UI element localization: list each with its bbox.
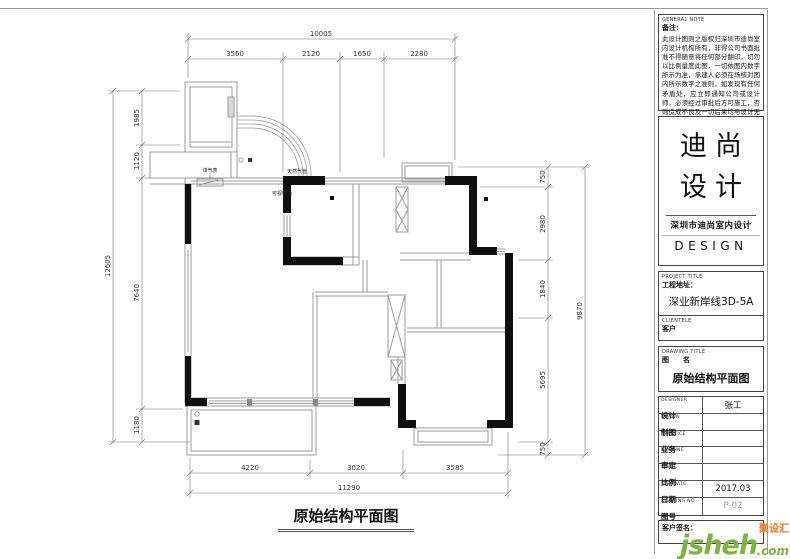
logo-rule <box>666 215 756 216</box>
logo-subtitle: 深圳市迪尚室内设计 <box>662 219 760 231</box>
gas-pipe-label: 天然气管 <box>287 168 307 175</box>
project-label-cn: 工程地址： <box>662 280 760 290</box>
shaft-b <box>388 295 405 380</box>
svg-text:12605: 12605 <box>104 255 112 277</box>
svg-text:9870: 9870 <box>576 302 584 320</box>
table-row-designer: DESIGNER设计 张工 <box>659 397 763 414</box>
svg-text:750: 750 <box>539 442 547 455</box>
plan-caption-text: 原始结构平面图 <box>293 507 398 525</box>
table-row-scale: SCALE比例 <box>659 464 763 481</box>
svg-text:2120: 2120 <box>302 50 320 58</box>
table-row-practice: PRACTICE业务 <box>659 431 763 448</box>
dimension-right: 750 2980 1840 5695 750 9870 <box>458 164 590 458</box>
logo-line1: 迪尚 <box>662 127 760 168</box>
structural-walls <box>185 176 513 428</box>
table-row-drawn: DRAWN制图 <box>659 414 763 431</box>
svg-text:2980: 2980 <box>539 215 547 233</box>
svg-text:3585: 3585 <box>446 464 464 472</box>
intercom-label: 可视电话 <box>272 190 292 197</box>
svg-text:1840: 1840 <box>539 280 547 298</box>
gas-meter-label: 煤气表 <box>202 167 217 174</box>
dimension-top: 10005 3560 2120 1650 2280 <box>185 30 458 172</box>
svg-text:1120: 1120 <box>133 152 141 170</box>
svg-text:1180: 1180 <box>133 416 141 434</box>
watermark-tld: .com <box>757 544 789 558</box>
logo-line2: 设计 <box>662 168 760 209</box>
general-note-section: GENERAL NOTE 备注: 此设计图则之版权归深圳市迪尚室内设计机构所有，… <box>658 14 764 111</box>
table-row-examine: EXAMINE审定 <box>659 447 763 464</box>
drawing-sheet: 煤气表 天然气管 可视电话 10005 3560 2120 1650 <box>0 0 790 559</box>
drawing-title-label-cn: 图 名 <box>662 355 760 365</box>
drawing-title-value: 原始结构平面图 <box>662 370 760 386</box>
svg-text:1985: 1985 <box>133 109 141 127</box>
plan-caption: 原始结构平面图 <box>278 505 414 532</box>
project-value: 深业新岸线3D-5A <box>662 294 760 309</box>
svg-text:3020: 3020 <box>347 464 365 472</box>
spec-table: DESIGNER设计 张工 DRAWN制图 PRACTICE业务 EXAMINE… <box>658 396 764 516</box>
title-block: GENERAL NOTE 备注: 此设计图则之版权归深圳市迪尚室内设计机构所有，… <box>654 10 768 554</box>
dimension-left: 1985 1120 7640 1180 12605 <box>104 88 190 445</box>
jsheh-watermark: 聚设汇 jsheh .com <box>680 520 790 558</box>
watermark-name: jsheh <box>680 530 757 559</box>
logo-section: 迪尚 设计 深圳市迪尚室内设计 DESIGN <box>658 116 764 266</box>
svg-text:2280: 2280 <box>410 50 428 58</box>
table-row-date: SIG. DATE日期 2017.03 <box>659 481 763 498</box>
table-row-drawing-no: DRAWING NO图号 P-02 <box>659 498 763 515</box>
dimensions: 10005 3560 2120 1650 2280 1985 1120 7640 <box>104 30 590 498</box>
svg-text:10005: 10005 <box>310 30 332 38</box>
shaft-a <box>396 187 408 232</box>
logo-design-text: DESIGN <box>662 235 760 253</box>
general-note-label-cn: 备注: <box>662 23 760 33</box>
svg-text:750: 750 <box>539 170 547 183</box>
svg-text:4220: 4220 <box>241 464 259 472</box>
svg-text:7640: 7640 <box>133 284 141 302</box>
svg-text:1650: 1650 <box>353 50 371 58</box>
watermark-badge: 聚设汇 <box>759 520 789 535</box>
clientele-label-cn: 客户 <box>662 324 760 334</box>
drawing-title-section: DRAWING TITLE 图 名 原始结构平面图 <box>658 346 764 392</box>
floor-plan-canvas: 煤气表 天然气管 可视电话 10005 3560 2120 1650 <box>0 0 660 559</box>
svg-text:5695: 5695 <box>539 371 547 389</box>
svg-text:3560: 3560 <box>226 50 244 58</box>
svg-text:11290: 11290 <box>338 484 360 492</box>
general-note-text: 此设计图则之版权归深圳市迪尚室内设计机构所有，非得公司书面批准不得随意将任何部分… <box>662 35 760 126</box>
project-section: PROJECT TITLE 工程地址： 深业新岸线3D-5A CLIENTELE… <box>658 271 764 341</box>
